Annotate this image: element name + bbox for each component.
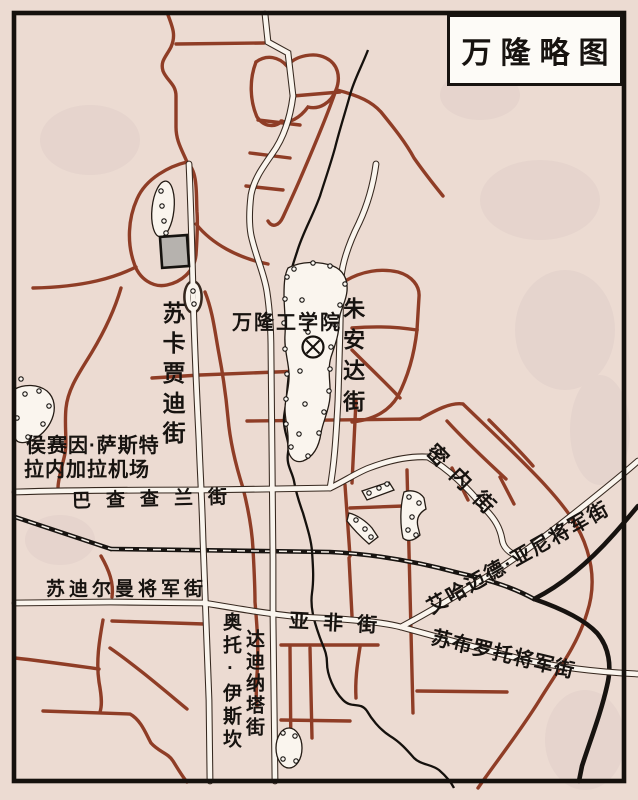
label-otto-iskandardinata-line1: 奥托·伊斯坎 (220, 612, 240, 752)
map-title: 万隆略图 (453, 28, 618, 72)
label-airport-line1: 侯赛因·萨斯特 (26, 436, 160, 457)
label-otto-iskandardinata-line2: 达迪纳塔街 (243, 629, 263, 739)
label-sudirman-street: 苏迪尔曼将军街 (46, 580, 207, 600)
bandung-sketch-map: 万隆略图 苏卡贾迪街 万隆工学院 朱安达街 侯赛因·萨斯特 拉内加拉机场 巴查查… (0, 0, 638, 800)
institute-symbol (303, 337, 324, 358)
label-juanda-street: 朱安达街 (341, 297, 364, 421)
label-sukajadi-street: 苏卡贾迪街 (160, 301, 184, 451)
label-bandung-institute: 万隆工学院 (232, 313, 342, 334)
label-airport-line2: 拉内加拉机场 (24, 460, 150, 481)
map-canvas (0, 0, 638, 800)
building-block (160, 235, 189, 268)
map-title-box: 万隆略图 (447, 14, 623, 86)
